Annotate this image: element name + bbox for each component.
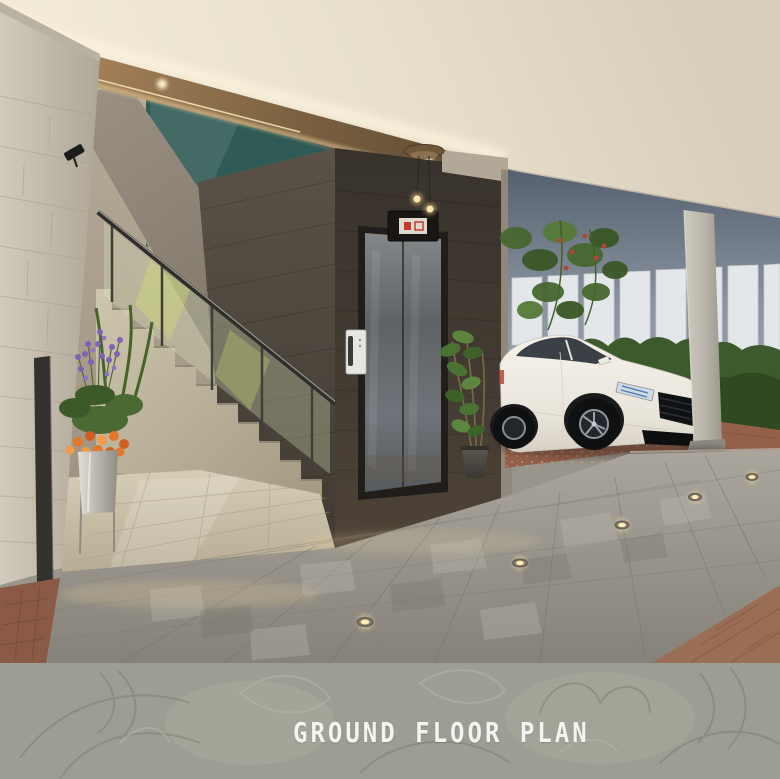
parking-area	[490, 170, 780, 468]
floor-indicator-display	[388, 211, 438, 241]
banner-title: GROUND FLOOR PLAN	[293, 717, 590, 749]
ground-floor-scene	[0, 0, 780, 663]
banner: GROUND FLOOR PLAN	[0, 663, 780, 779]
gate-post	[34, 356, 53, 582]
architectural-render: GROUND FLOOR PLAN	[0, 0, 780, 779]
metal-planter	[78, 450, 118, 514]
intercom-panel	[346, 330, 366, 374]
